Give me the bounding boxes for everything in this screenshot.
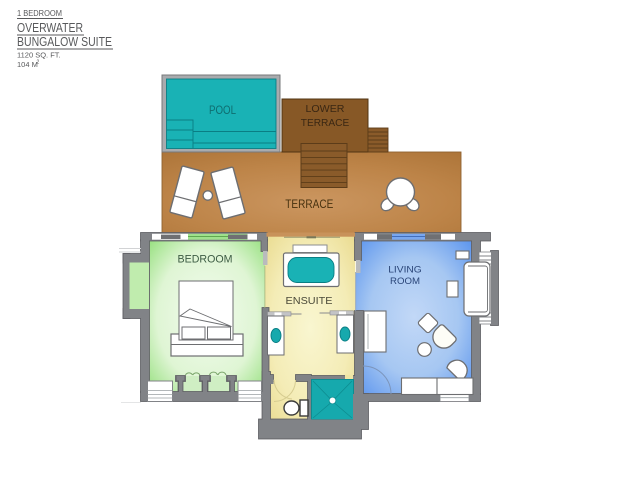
svg-text:TERRACE: TERRACE (301, 117, 350, 129)
svg-text:LOWER: LOWER (306, 103, 345, 115)
svg-text:TERRACE: TERRACE (285, 197, 333, 211)
svg-text:LIVING: LIVING (388, 265, 422, 276)
svg-text:1 BEDROOM: 1 BEDROOM (17, 9, 62, 18)
svg-text:ENSUITE: ENSUITE (286, 296, 333, 307)
svg-text:1120 SQ. FT.: 1120 SQ. FT. (17, 51, 61, 60)
svg-text:ROOM: ROOM (390, 276, 420, 287)
svg-text:OVERWATER: OVERWATER (17, 21, 83, 35)
svg-text:BEDROOM: BEDROOM (178, 254, 233, 266)
svg-text:POOL: POOL (209, 105, 236, 117)
svg-text:BUNGALOW SUITE: BUNGALOW SUITE (17, 35, 112, 49)
svg-text:104 M: 104 M (17, 60, 38, 69)
svg-text:2: 2 (37, 60, 40, 66)
